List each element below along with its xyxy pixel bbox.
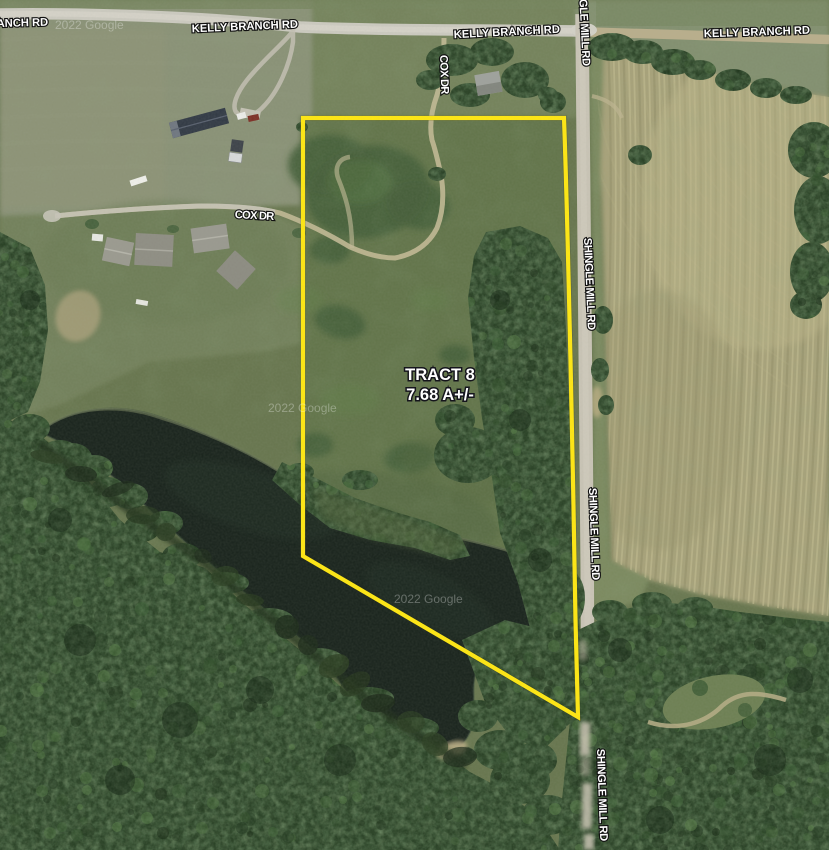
svg-text:2022 Google: 2022 Google: [394, 592, 463, 606]
svg-text:TRACT 8: TRACT 8: [405, 366, 475, 384]
svg-text:7.68 A+/-: 7.68 A+/-: [406, 386, 474, 404]
svg-text:COX DR: COX DR: [235, 209, 275, 223]
svg-text:2022 Google: 2022 Google: [55, 18, 124, 32]
svg-text:2022 Google: 2022 Google: [268, 401, 337, 415]
svg-text:COX DR: COX DR: [437, 55, 450, 95]
